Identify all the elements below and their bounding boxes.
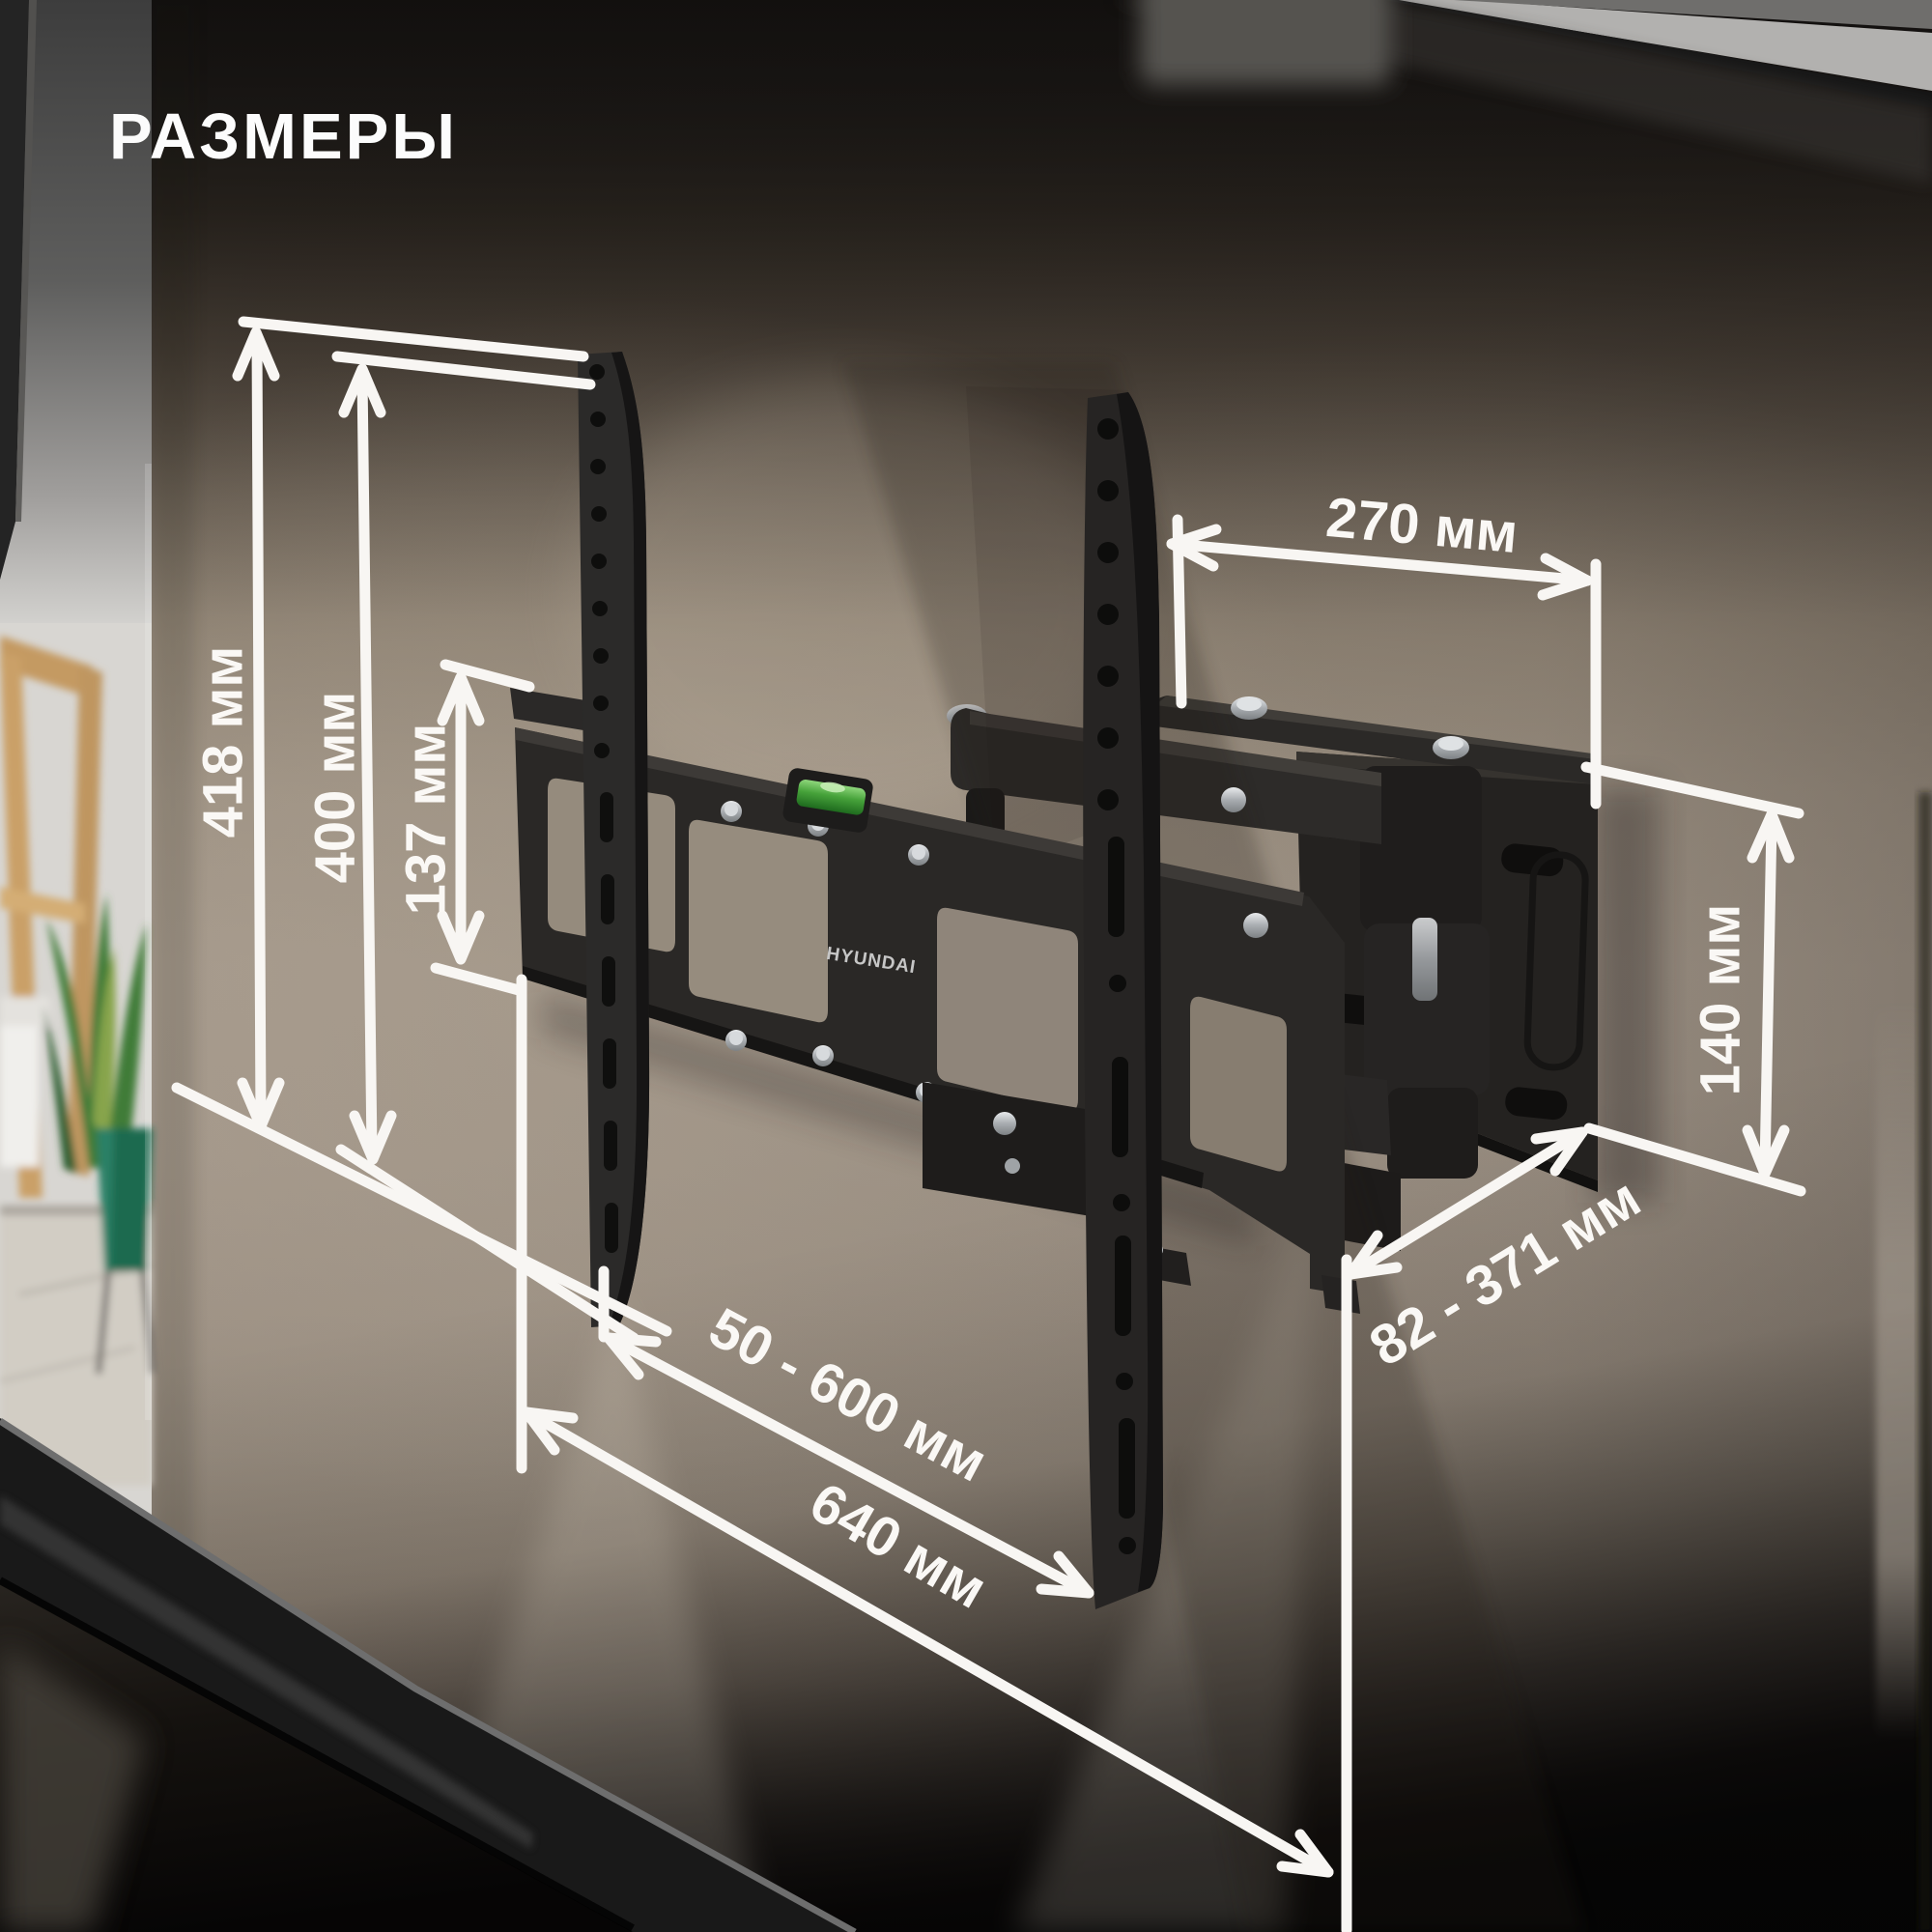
svg-text:137 мм: 137 мм xyxy=(395,724,458,916)
svg-text:140 мм: 140 мм xyxy=(1690,904,1752,1096)
svg-text:РАЗМЕРЫ: РАЗМЕРЫ xyxy=(109,100,458,173)
svg-text:418 мм: 418 мм xyxy=(192,646,255,838)
svg-text:400 мм: 400 мм xyxy=(304,692,367,884)
